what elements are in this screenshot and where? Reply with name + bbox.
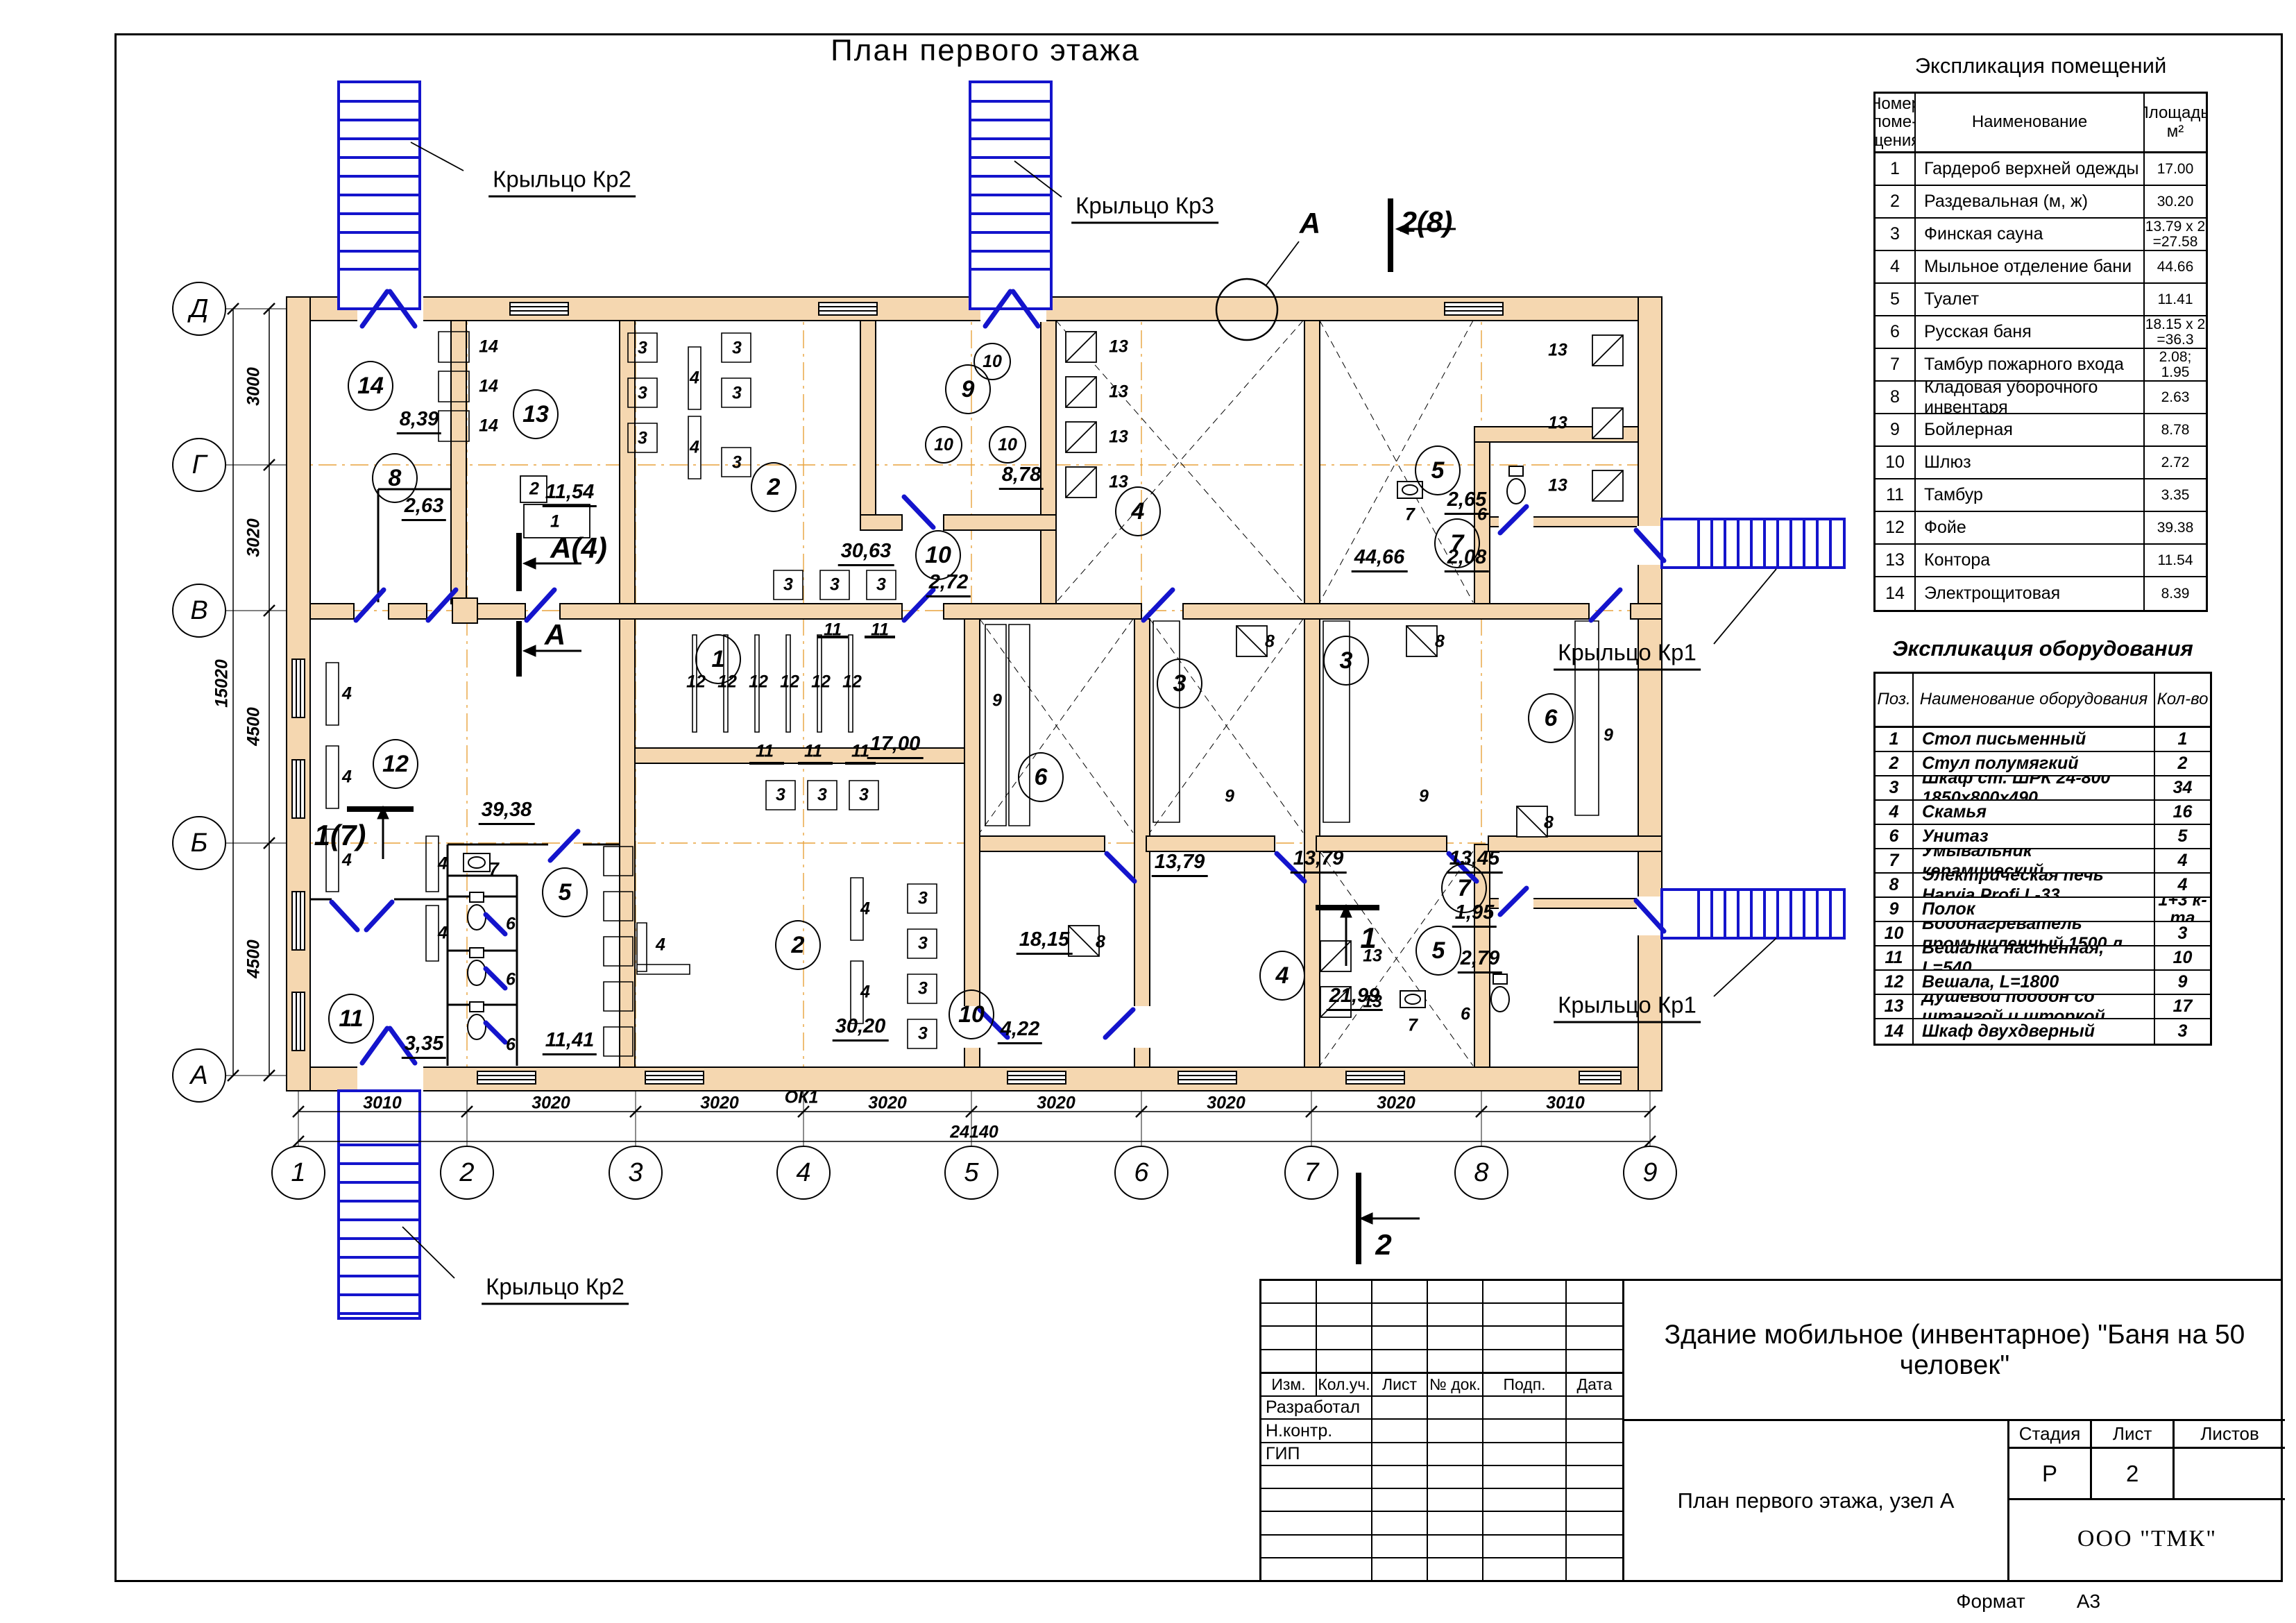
col-koluch: Кол.уч.: [1317, 1374, 1372, 1395]
plan-label-eq: 4: [860, 983, 870, 1003]
table-row: 10Шлюз2.72: [1876, 447, 2206, 479]
table-cell: 3.35: [2145, 479, 2206, 511]
plan-label-adim: 11,54: [543, 481, 597, 507]
plan-label-eq: 2: [529, 479, 539, 500]
stage-block: Стадия Лист Листов Р 2 ООО "ТМК": [2007, 1421, 2285, 1580]
drawing-sheet: План первого этажа123456789ДГВБА30103020…: [0, 0, 2296, 1623]
table-cell: Мыльное отделение бани: [1916, 251, 2145, 282]
table-cell: 1: [1876, 728, 1914, 751]
stair-kr1-lower: [1662, 890, 1844, 938]
col-list: Лист: [1372, 1374, 1428, 1395]
plan-label-room: 8: [372, 453, 418, 503]
plan-label-ecirc: 10: [973, 343, 1011, 380]
plan-label-eq: 7: [489, 860, 499, 880]
table-row: 3Финская сауна13.79 х 2 =27.58: [1876, 219, 2206, 251]
plan-label-dim: 3020: [1207, 1094, 1245, 1114]
plan-label-adim: 2,63: [402, 495, 446, 521]
plan-label-dim: 3010: [363, 1094, 402, 1114]
plan-label-eq: 13: [1548, 341, 1567, 361]
plan-label-lead: Крыльцо Кр3: [1071, 193, 1218, 224]
table-row: 3Шкаф ст. ШРК 24-800 1850х800х49034: [1876, 776, 2210, 801]
table-row: 12Фойе39.38: [1876, 512, 2206, 545]
plan-label-eq: 12: [686, 672, 706, 692]
plan-label-adim: 30,63: [838, 540, 894, 566]
rooms-table-title: Экспликация помещений: [1915, 53, 2167, 78]
table-row: 2Стул полумягкий2: [1876, 752, 2210, 776]
plan-label-eq: 8: [1265, 632, 1275, 652]
table-cell: 3: [2155, 922, 2210, 945]
plan-label-room: 6: [1528, 693, 1574, 743]
plan-label-room: 7: [1434, 518, 1480, 568]
table-row: 9Полок1+3 к-та: [1876, 898, 2210, 922]
plan-label-eq: 11: [804, 742, 822, 762]
plan-label-adim: 13,79: [1291, 847, 1347, 874]
plan-label-eq: 3: [918, 934, 928, 954]
plan-label-room: 6: [1018, 752, 1064, 802]
table-cell: Скамья: [1914, 801, 2155, 824]
table-cell: Русская баня: [1916, 316, 2145, 348]
equipment-col-name: Наименование оборудования: [1914, 674, 2155, 726]
table-cell: 39.38: [2145, 512, 2206, 543]
plan-label-room: 10: [949, 989, 994, 1039]
plan-label-ecirc: 10: [989, 426, 1026, 464]
plan-label-dim: 3020: [532, 1094, 570, 1114]
plan-label-adim: 2,79: [1458, 947, 1502, 974]
table-row: 13Контора11.54: [1876, 545, 2206, 577]
table-cell: 17: [2155, 995, 2210, 1018]
table-cell: Бойлерная: [1916, 414, 2145, 445]
table-cell: 9: [1876, 898, 1914, 921]
plan-label-eq: 12: [717, 672, 737, 692]
table-cell: Водонагреватель промышленный 1500 л.: [1914, 922, 2155, 945]
plan-label-room: 7: [1441, 863, 1487, 913]
plan-label-ecirc: 10: [925, 426, 962, 464]
table-cell: Стул полумягкий: [1914, 752, 2155, 775]
plan-label-eq: 13: [1109, 427, 1128, 448]
table-cell: 2: [1876, 752, 1914, 775]
table-row: 1Гардероб верхней одежды17.00: [1876, 153, 2206, 186]
table-cell: 6: [1876, 825, 1914, 848]
plan-label-ax: 9: [1623, 1146, 1677, 1200]
plan-label-eq: 8: [1544, 813, 1554, 833]
table-cell: 8: [1876, 382, 1916, 413]
table-row: 8Кладовая уборочного инвентаря2.63: [1876, 382, 2206, 414]
plan-label-eq: 11: [824, 620, 842, 640]
plan-label-dim: 3020: [868, 1094, 907, 1114]
plan-label-eq: 4: [342, 684, 352, 704]
plan-label-sec: 1(7): [314, 819, 366, 852]
table-cell: 16: [2155, 801, 2210, 824]
col-data: Дата: [1567, 1374, 1622, 1395]
plan-label-eq: 13: [1109, 382, 1128, 402]
table-cell: 3: [1876, 776, 1914, 799]
table-cell: Стол письменный: [1914, 728, 2155, 751]
table-cell: 6: [1876, 316, 1916, 348]
table-cell: 18.15 х 2 =36.3: [2145, 316, 2206, 348]
plan-label-eq: 14: [479, 416, 498, 436]
plan-label-dim: 3020: [1037, 1094, 1075, 1114]
plan-label-sec: 2(8): [1401, 205, 1453, 239]
table-cell: 34: [2155, 776, 2210, 799]
table-row: 7Тамбур пожарного входа2.08; 1.95: [1876, 349, 2206, 382]
plan-label-dim: 24140: [950, 1123, 998, 1143]
format-value: А3: [2077, 1590, 2100, 1613]
furniture-sauna-shelves: [985, 621, 1599, 826]
table-row: 14Электрощитовая8.39: [1876, 577, 2206, 610]
plan-label-lead: Крыльцо Кр2: [488, 167, 636, 198]
table-cell: 10: [1876, 922, 1914, 945]
table-row: 6Русская баня18.15 х 2 =36.3: [1876, 316, 2206, 349]
plan-label-eq: 13: [1109, 473, 1128, 493]
table-row: 13Душевой поддон со штангой и шторкой17: [1876, 995, 2210, 1019]
plan-label-ax: А: [172, 1048, 226, 1103]
plan-label-eq: 3: [859, 785, 869, 806]
table-cell: 4: [2155, 874, 2210, 897]
plan-label-room: 14: [348, 361, 393, 411]
plan-label-eq: 4: [690, 438, 699, 458]
table-cell: 5: [1876, 284, 1916, 315]
table-cell: 30.20: [2145, 186, 2206, 217]
table-cell: 9: [2155, 971, 2210, 994]
plan-label-eq: 4: [438, 854, 448, 874]
plan-label-eq: 3: [918, 979, 928, 999]
plan-label-adim: 4,22: [998, 1018, 1042, 1044]
plan-label-eq: ОК1: [785, 1088, 819, 1108]
plan-label-eq: 13: [1548, 476, 1567, 496]
plan-label-eq: 3: [732, 453, 742, 473]
rooms-col-area: Площадь, м²: [2145, 94, 2206, 151]
table-cell: Кладовая уборочного инвентаря: [1916, 382, 2145, 413]
plan-label-eq: 3: [918, 1024, 928, 1044]
plan-label-eq: 1: [550, 512, 560, 532]
title-block: Изм. Кол.уч. Лист № док. Подп. Дата Разр…: [1259, 1279, 2283, 1582]
table-cell: 10: [1876, 447, 1916, 478]
plan-label-room: 5: [1415, 926, 1461, 976]
equipment-col-qty: Кол-во: [2155, 674, 2210, 726]
table-row: 5Туалет11.41: [1876, 284, 2206, 316]
table-cell: Раздевальная (м, ж): [1916, 186, 2145, 217]
table-cell: 14: [1876, 577, 1916, 610]
plan-label-lead: Крыльцо Кр1: [1554, 640, 1701, 671]
rooms-table: Номер поме- щения Наименование Площадь, …: [1873, 92, 2208, 612]
plan-label-ax: 8: [1454, 1146, 1508, 1200]
plan-label-ax: Г: [172, 438, 226, 492]
table-cell: 1+3 к-та: [2155, 898, 2210, 921]
table-cell: Электрическая печь Harvia Profi L-33: [1914, 874, 2155, 897]
plan-label-eq: 6: [1477, 505, 1487, 525]
plan-label-eq: 3: [732, 339, 742, 359]
plan-label-ax: 7: [1284, 1146, 1338, 1200]
plan-label-lead: Крыльцо Кр1: [1554, 992, 1701, 1023]
table-cell: 12: [1876, 512, 1916, 543]
plan-label-eq: 4: [342, 767, 352, 788]
plan-label-eq: 6: [506, 1035, 516, 1055]
plan-label-ax: 2: [440, 1146, 494, 1200]
plan-label-eq: 14: [479, 337, 498, 357]
plan-label-ax: 3: [609, 1146, 663, 1200]
table-row: 12Вешала, L=18009: [1876, 971, 2210, 995]
table-cell: Вешалка настенная, L=540: [1914, 946, 2155, 969]
plan-label-ax: 4: [776, 1146, 831, 1200]
plan-label-eq: 8: [1096, 933, 1105, 953]
table-cell: 2: [1876, 186, 1916, 217]
plan-label-eq: 14: [479, 377, 498, 397]
table-cell: 3: [2155, 1019, 2210, 1044]
stair-kr2-bottom: [339, 1091, 420, 1318]
table-cell: 2.08; 1.95: [2145, 349, 2206, 380]
table-row: 8Электрическая печь Harvia Profi L-334: [1876, 874, 2210, 898]
table-cell: 17.00: [2145, 153, 2206, 185]
sheets-label: Листов: [2175, 1421, 2285, 1447]
table-cell: Шлюз: [1916, 447, 2145, 478]
col-ndok: № док.: [1428, 1374, 1483, 1395]
table-cell: 2: [2155, 752, 2210, 775]
table-cell: 8.78: [2145, 414, 2206, 445]
table-cell: Гардероб верхней одежды: [1916, 153, 2145, 185]
plan-label-ax: 6: [1114, 1146, 1168, 1200]
table-row: 14Шкаф двухдверный3: [1876, 1019, 2210, 1044]
table-row: 6Унитаз5: [1876, 825, 2210, 849]
table-cell: 2.63: [2145, 382, 2206, 413]
table-cell: 9: [1876, 414, 1916, 445]
plan-label-adim: 39,38: [479, 799, 535, 825]
plan-label-eq: 6: [506, 915, 516, 935]
plan-label-eq: 12: [842, 672, 862, 692]
table-row: 1Стол письменный1: [1876, 728, 2210, 752]
table-cell: 14: [1876, 1019, 1914, 1044]
table-cell: 1: [2155, 728, 2210, 751]
table-row: 4Скамья16: [1876, 801, 2210, 825]
stair-kr1-upper: [1662, 519, 1844, 568]
plan-label-ax: В: [172, 584, 226, 638]
table-cell: 2.72: [2145, 447, 2206, 478]
plan-label-room: 2: [751, 462, 797, 512]
sheet-label: Лист: [2092, 1421, 2175, 1447]
table-cell: 11.54: [2145, 545, 2206, 576]
plan-label-room: 5: [1415, 445, 1461, 495]
stage-label: Стадия: [2009, 1421, 2092, 1447]
plan-label-ax: 1: [271, 1146, 325, 1200]
plan-label-room: 3: [1323, 636, 1369, 686]
plan-label-eq: 4: [690, 368, 699, 389]
plan-label-room: 10: [915, 530, 961, 580]
plan-label-eq: 9: [992, 691, 1002, 711]
stage-value: Р: [2009, 1449, 2092, 1498]
table-cell: 7: [1876, 849, 1914, 872]
table-cell: 44.66: [2145, 251, 2206, 282]
plan-label-vdim: 3020: [244, 518, 264, 557]
plan-label-sec: А: [1300, 207, 1320, 240]
plan-label-eq: 13: [1363, 992, 1382, 1012]
table-cell: 11.41: [2145, 284, 2206, 315]
plan-label-eq: 3: [783, 575, 793, 595]
table-cell: 11: [1876, 946, 1914, 969]
table-row: 11Вешалка настенная, L=54010: [1876, 946, 2210, 971]
table-cell: 3: [1876, 219, 1916, 250]
table-cell: 4: [2155, 849, 2210, 872]
plan-label-eq: 7: [1405, 505, 1415, 525]
plan-label-sec: А: [545, 618, 566, 652]
equipment-table: Поз. Наименование оборудования Кол-во 1С…: [1873, 672, 2212, 1046]
plan-label-vdim: 4500: [244, 707, 264, 746]
plan-label-room: 3: [1157, 658, 1202, 708]
table-row: 7Умывальник керамический4: [1876, 849, 2210, 874]
plan-label-eq: 7: [1408, 1016, 1418, 1036]
table-cell: Электрощитовая: [1916, 577, 2145, 610]
stair-kr3-top: [970, 82, 1051, 309]
table-cell: Финская сауна: [1916, 219, 2145, 250]
table-cell: 11: [1876, 479, 1916, 511]
row-gip: ГИП: [1261, 1443, 1372, 1465]
table-cell: Унитаз: [1914, 825, 2155, 848]
plan-label-eq: 4: [438, 924, 448, 944]
plan-label-dim: 3020: [700, 1094, 739, 1114]
plan-label-room: 2: [775, 920, 821, 970]
equipment-table-title: Экспликация оборудования: [1892, 636, 2193, 661]
plan-label-room: 11: [328, 994, 374, 1044]
plan-label-sec: А(4): [550, 532, 607, 565]
table-row: 2Раздевальная (м, ж)30.20: [1876, 186, 2206, 219]
plan-label-eq: 3: [638, 429, 647, 449]
table-cell: 13: [1876, 995, 1914, 1018]
table-cell: Умывальник керамический: [1914, 849, 2155, 872]
rooms-col-name: Наименование: [1916, 94, 2145, 151]
plan-label-vdim: 3000: [244, 367, 264, 406]
plan-label-eq: 4: [656, 935, 665, 955]
plan-label-eq: 11: [851, 742, 869, 762]
plan-label-eq: 9: [1225, 787, 1234, 807]
table-cell: 7: [1876, 349, 1916, 380]
table-cell: Фойе: [1916, 512, 2145, 543]
sheets-value: [2175, 1449, 2285, 1498]
rooms-col-number: Номер поме- щения: [1876, 94, 1916, 151]
table-cell: Полок: [1914, 898, 2155, 921]
stair-kr2-top: [339, 82, 420, 309]
plan-label-adim: 30,20: [833, 1015, 889, 1042]
plan-label-eq: 3: [638, 384, 647, 404]
document-title: Здание мобильное (инвентарное) "Баня на …: [1622, 1281, 2285, 1421]
table-cell: Контора: [1916, 545, 2145, 576]
plan-label-vdim: 15020: [212, 659, 232, 708]
sheet-caption: План первого этажа, узел А: [1622, 1421, 2007, 1580]
table-cell: Душевой поддон со штангой и шторкой: [1914, 995, 2155, 1018]
table-cell: Тамбур: [1916, 479, 2145, 511]
table-cell: Шкаф двухдверный: [1914, 1019, 2155, 1044]
row-nkontr: Н.контр.: [1261, 1420, 1372, 1441]
plan-label-adim: 8,39: [397, 408, 441, 434]
plan-label-ax: 5: [944, 1146, 998, 1200]
porch-stairs: [339, 82, 1844, 1318]
plan-label-eq: 3: [732, 384, 742, 404]
plan-label-room: 5: [542, 867, 588, 917]
table-cell: Туалет: [1916, 284, 2145, 315]
plan-label-adim: 18,15: [1017, 928, 1073, 955]
plan-label-eq: 4: [342, 851, 352, 871]
plan-label-adim: 11,41: [543, 1029, 597, 1055]
plan-label-eq: 9: [1419, 787, 1429, 807]
plan-label-eq: 3: [817, 785, 827, 806]
plan-label-eq: 11: [871, 620, 889, 640]
plan-label-adim: 13,79: [1152, 851, 1208, 877]
plan-label-eq: 12: [749, 672, 768, 692]
plan-label-dim: 3010: [1546, 1094, 1585, 1114]
plan-label-eq: 3: [776, 785, 785, 806]
table-cell: 13.79 х 2 =27.58: [2145, 219, 2206, 250]
organization-name: ООО "ТМК": [2009, 1500, 2285, 1578]
table-cell: Тамбур пожарного входа: [1916, 349, 2145, 380]
plan-label-adim: 3,35: [402, 1033, 446, 1059]
equipment-col-pos: Поз.: [1876, 674, 1914, 726]
row-razrabotal: Разработал: [1261, 1397, 1372, 1418]
plan-label-adim: 8,78: [999, 464, 1044, 490]
plan-label-eq: 13: [1109, 337, 1128, 357]
col-podp: Подп.: [1483, 1374, 1567, 1395]
plan-label-eq: 12: [811, 672, 831, 692]
furniture-lockers: [604, 333, 937, 1056]
plan-label-vdim: 4500: [244, 940, 264, 978]
plan-label-eq: 3: [918, 889, 928, 909]
table-cell: 12: [1876, 971, 1914, 994]
table-cell: 13: [1876, 545, 1916, 576]
table-row: 10Водонагреватель промышленный 1500 л.3: [1876, 922, 2210, 946]
plan-label-eq: 8: [1435, 632, 1445, 652]
plan-label-ptitle: План первого этажа: [831, 33, 1140, 68]
plan-label-eq: 9: [1604, 726, 1613, 746]
plan-label-eq: 3: [830, 575, 840, 595]
col-izm: Изм.: [1261, 1374, 1317, 1395]
plan-label-adim: 44,66: [1352, 546, 1408, 572]
plan-label-room: 4: [1259, 951, 1305, 1001]
table-cell: 10: [2155, 946, 2210, 969]
plan-label-eq: 13: [1548, 414, 1567, 434]
table-row: 9Бойлерная8.78: [1876, 414, 2206, 447]
table-row: 11Тамбур3.35: [1876, 479, 2206, 512]
format-label: Формат: [1956, 1590, 2025, 1613]
plan-label-eq: 6: [506, 970, 516, 990]
plan-label-eq: 11: [756, 742, 774, 762]
plan-label-ax: Б: [172, 816, 226, 870]
plan-label-eq: 3: [638, 339, 647, 359]
table-cell: 5: [2155, 825, 2210, 848]
table-cell: Шкаф ст. ШРК 24-800 1850х800х490: [1914, 776, 2155, 799]
plan-label-lead: Крыльцо Кр2: [482, 1274, 629, 1305]
plan-label-room: 4: [1115, 486, 1161, 536]
table-cell: 8: [1876, 874, 1914, 897]
plan-label-eq: 4: [860, 899, 870, 919]
table-cell: Вешала, L=1800: [1914, 971, 2155, 994]
plan-label-room: 12: [373, 739, 418, 789]
table-cell: 4: [1876, 251, 1916, 282]
plan-label-room: 13: [513, 389, 559, 439]
plan-label-eq: 12: [780, 672, 799, 692]
table-cell: 4: [1876, 801, 1914, 824]
plan-label-dim: 3020: [1377, 1094, 1415, 1114]
plan-label-ax: Д: [172, 282, 226, 336]
plan-label-eq: 13: [1363, 946, 1382, 967]
table-cell: 1: [1876, 153, 1916, 185]
plan-label-adim: 17,00: [867, 733, 924, 759]
plan-label-sec: 2: [1375, 1228, 1391, 1261]
title-block-revision-grid: Изм. Кол.уч. Лист № док. Подп. Дата Разр…: [1261, 1281, 1622, 1580]
plan-label-eq: 3: [876, 575, 886, 595]
sheet-number: 2: [2092, 1449, 2175, 1498]
table-row: 4Мыльное отделение бани44.66: [1876, 251, 2206, 284]
table-cell: 8.39: [2145, 577, 2206, 610]
plan-label-eq: 6: [1461, 1005, 1470, 1025]
